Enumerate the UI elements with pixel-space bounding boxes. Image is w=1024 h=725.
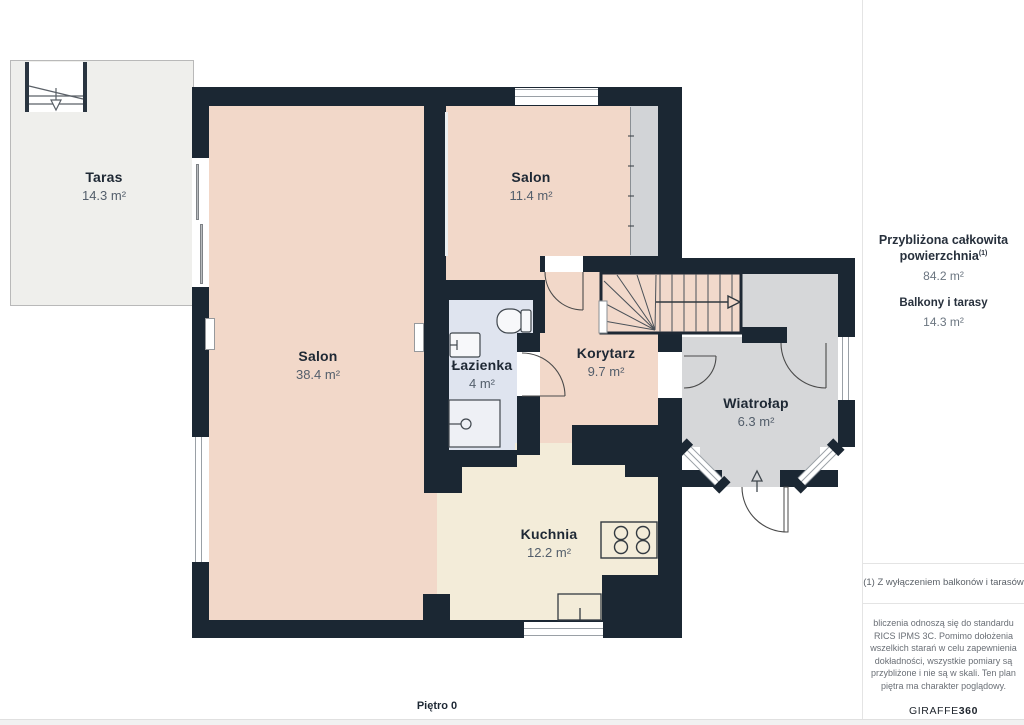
window-line xyxy=(515,96,598,97)
door-gap-salon-small xyxy=(545,256,583,272)
wall-salon-divider xyxy=(424,88,446,280)
total-area-label-line1: Przybliżona całkowita xyxy=(879,233,1008,247)
wall-ext-right-1 xyxy=(838,258,855,337)
disclaimer-line: dokładności, wszystkie pomiary są xyxy=(863,655,1024,668)
wall-ext-right-2 xyxy=(838,400,855,447)
total-area-block: Przybliżona całkowita powierzchnia(1) 84… xyxy=(863,233,1024,329)
brand-number: 360 xyxy=(959,705,978,717)
wall-salon-kuchnia-stub xyxy=(423,594,450,621)
room-salon-large-floor xyxy=(209,106,424,620)
floor-caption: Piętro 0 xyxy=(417,700,457,712)
room-korytarz-strip xyxy=(540,272,600,302)
disclaimer-line: przybliżone i nie są w skali. Ten plan xyxy=(863,667,1024,680)
window-line xyxy=(201,437,202,562)
room-korytarz-floor xyxy=(540,302,658,425)
slider-panel xyxy=(200,224,203,284)
wall-bath-right-upper xyxy=(533,300,545,333)
wall-bath-top xyxy=(440,280,545,300)
wall-korytarz-bottom-b xyxy=(625,465,658,477)
balconies-label: Balkony i tarasy xyxy=(863,297,1024,309)
total-area-label-line2: powierzchnia xyxy=(900,249,979,263)
total-area-label: Przybliżona całkowita powierzchnia(1) xyxy=(863,233,1024,263)
disclaimer-block: bliczenia odnoszą się do standardu RICS … xyxy=(863,617,1024,717)
disclaimer-line: piętra ma charakter poglądowy. xyxy=(863,680,1024,693)
window-line xyxy=(515,89,598,90)
disclaimer-line: wszelkich starań w celu zapewnienia xyxy=(863,642,1024,655)
bottom-edge-band xyxy=(0,719,1024,725)
disclaimer-line: RICS IPMS 3C. Pomimo dołożenia xyxy=(863,630,1024,643)
area-footnote: (1) Z wyłączeniem balkonów i tarasów xyxy=(863,577,1024,588)
salon-small-closet xyxy=(630,106,658,256)
wall-left-3 xyxy=(192,562,209,620)
giraffe360-logo: GIRAFFE360 xyxy=(863,705,1024,717)
window-line xyxy=(848,337,849,400)
wall-kitchen-corner xyxy=(602,575,678,638)
glazing-line-salons xyxy=(445,112,448,256)
disclaimer-line: bliczenia odnoszą się do standardu xyxy=(863,617,1024,630)
brand-name: GIRAFFE xyxy=(909,705,959,717)
wall-wiatrolap-bottom-left xyxy=(678,470,722,487)
door-gap-lazienka xyxy=(517,352,540,396)
wall-stair-band xyxy=(742,327,787,343)
wall-wiatrolap-bottom-right xyxy=(780,470,838,487)
floorplan-viewer: { "plan": { "floor_label": "Piętro 0", "… xyxy=(0,0,1024,724)
total-area-value: 84.2 m² xyxy=(863,269,1024,283)
sidebar-divider xyxy=(863,603,1024,604)
room-salon-small-floor xyxy=(446,106,658,256)
room-wiatrolap-floor xyxy=(682,337,838,447)
wall-bath-bottom xyxy=(443,450,517,467)
room-salon-small-floor-dip xyxy=(446,256,540,280)
window-line xyxy=(524,628,603,629)
balconies-value: 14.3 m² xyxy=(863,315,1024,329)
room-korytarz-floor-lower xyxy=(540,425,572,443)
wall-bath-right-b xyxy=(517,396,540,455)
sidebar-divider xyxy=(863,563,1024,564)
slider-panel xyxy=(196,164,199,220)
room-lazienka-floor-nook xyxy=(449,300,533,333)
wall-left-2 xyxy=(192,287,209,437)
terrace-area xyxy=(10,60,194,306)
window-line xyxy=(195,437,196,562)
room-kuchnia-floor-b xyxy=(462,467,515,493)
wall-ext-top xyxy=(678,258,855,274)
wall-bath-right-a xyxy=(517,333,540,352)
wall-korytarz-bottom xyxy=(572,425,658,465)
radiator-niche-right xyxy=(414,323,424,352)
wall-left-1 xyxy=(192,106,209,158)
footnote-marker: (1) xyxy=(979,250,988,257)
door-entrance xyxy=(742,487,788,532)
room-lazienka-floor xyxy=(449,333,517,450)
summary-sidebar: Przybliżona całkowita powierzchnia(1) 84… xyxy=(863,0,1024,724)
radiator-niche-left xyxy=(205,318,215,350)
door-gap-wiatrolap xyxy=(658,352,682,398)
window-line xyxy=(524,635,603,636)
window-line xyxy=(842,337,843,400)
room-salon-large-floor-ext xyxy=(424,493,437,594)
